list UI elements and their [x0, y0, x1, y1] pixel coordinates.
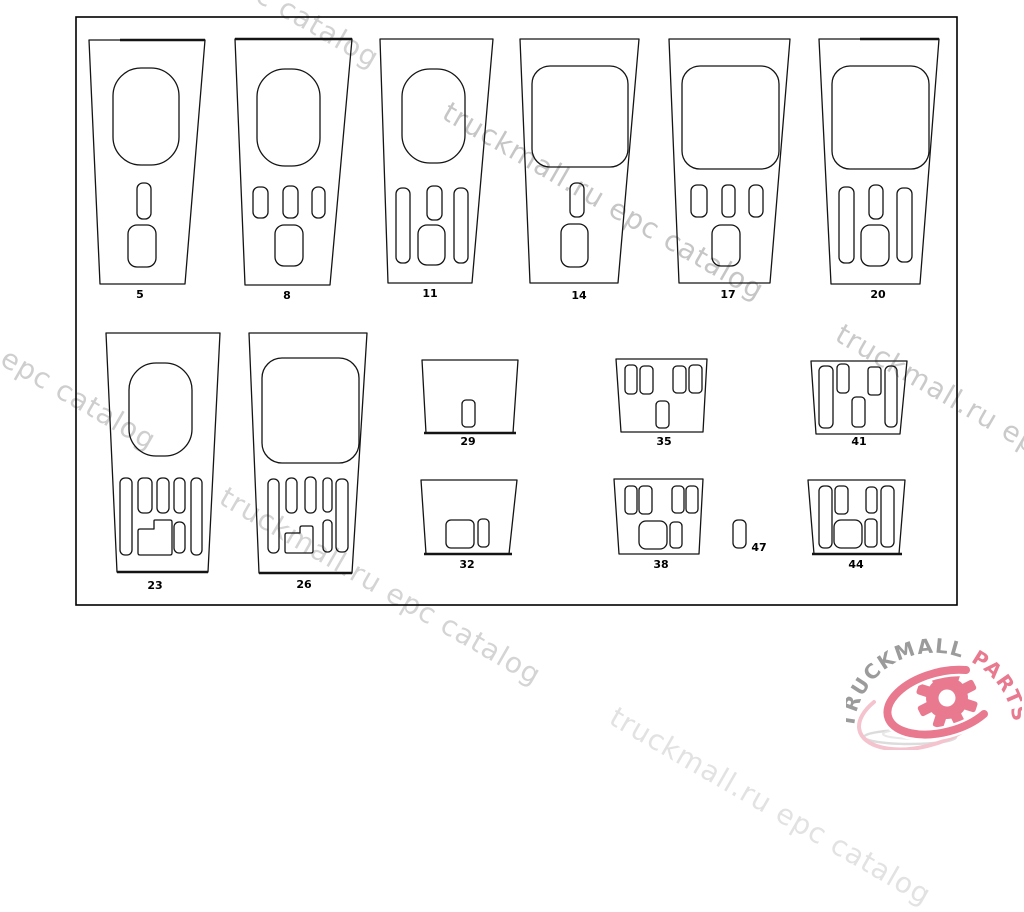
part-panel-29[interactable]: 29	[422, 360, 518, 448]
panel-cutout	[819, 366, 833, 428]
panel-cutout	[835, 486, 848, 514]
diagram-border	[76, 17, 957, 605]
part-panel-44[interactable]: 44	[808, 480, 905, 571]
part-number-23[interactable]: 23	[147, 579, 162, 592]
panel-outline	[669, 39, 790, 283]
panel-cutout	[837, 364, 849, 393]
panel-cutout	[819, 486, 832, 548]
catalog-page: { "page": { "background": "#ffffff" }, "…	[0, 0, 1024, 750]
part-panel-14[interactable]: 14	[520, 39, 639, 302]
panel-cutout	[691, 185, 707, 217]
panel-cutout	[673, 366, 686, 393]
panel-cutout	[323, 520, 332, 552]
part-number-17[interactable]: 17	[720, 288, 735, 301]
part-number-35[interactable]: 35	[656, 435, 671, 448]
part-number-8[interactable]: 8	[283, 289, 291, 302]
panel-cutout	[253, 187, 268, 218]
panel-outline	[422, 360, 518, 433]
panel-outline	[106, 333, 220, 572]
panel-cutout	[402, 69, 465, 163]
panel-cutout	[257, 69, 320, 166]
panel-cutout	[868, 367, 881, 395]
part-number-14[interactable]: 14	[571, 289, 587, 302]
panel-cutout	[832, 66, 929, 169]
panel-cutout	[672, 486, 684, 513]
panel-cutout	[336, 479, 348, 552]
panel-outline	[808, 480, 905, 554]
part-panel-11[interactable]: 11	[380, 39, 493, 300]
panel-cutout	[625, 486, 637, 514]
panel-cutout	[120, 478, 132, 555]
part-panel-20[interactable]: 20	[819, 39, 939, 301]
panel-cutout	[454, 188, 468, 263]
part-number-20[interactable]: 20	[870, 288, 886, 301]
panel-cutout	[866, 487, 877, 513]
panel-cutout	[639, 486, 652, 514]
panel-cutout	[446, 520, 474, 548]
panel-cutout	[640, 366, 653, 394]
part-panel-17[interactable]: 17	[669, 39, 790, 301]
panel-cutout	[268, 479, 279, 553]
part-number-5[interactable]: 5	[136, 288, 144, 301]
panel-cutout	[625, 365, 637, 394]
panel-cutout	[129, 363, 192, 456]
panel-cutout	[656, 401, 669, 428]
panel-outline	[89, 40, 205, 284]
panel-outline	[421, 480, 517, 554]
panel-cutout	[323, 478, 332, 512]
part-number-32[interactable]: 32	[459, 558, 474, 571]
part-panel-26[interactable]: 26	[249, 333, 367, 591]
panel-cutout	[396, 188, 410, 263]
panel-cutout	[138, 520, 172, 555]
panel-cutout	[138, 478, 152, 513]
part-panel-8[interactable]: 8	[235, 39, 352, 302]
panel-cutout	[722, 185, 735, 217]
panel-cutout	[286, 478, 297, 513]
panel-cutout	[885, 366, 897, 427]
panel-cutout	[137, 183, 151, 219]
panel-outline	[616, 359, 707, 432]
panel-cutout	[561, 224, 588, 267]
panel-cutout	[285, 526, 313, 553]
part-panel-35[interactable]: 35	[616, 359, 707, 448]
truckmall-logo: TRUCKMALL PARTS	[846, 636, 1022, 750]
part-panel-38[interactable]: 38	[614, 479, 703, 571]
panel-outline	[614, 479, 703, 554]
panel-cutout	[639, 521, 667, 549]
panel-cutout	[262, 358, 359, 463]
panel-cutout	[312, 187, 325, 218]
panel-cutout	[275, 225, 303, 266]
panel-cutout	[682, 66, 779, 169]
panel-cutout	[834, 520, 862, 548]
panel-cutout	[712, 225, 740, 266]
panel-cutout	[670, 522, 682, 548]
panel-cutout	[157, 478, 169, 513]
panel-cutout	[733, 520, 746, 548]
panel-cutout	[897, 188, 912, 262]
part-panel-47[interactable]: 47	[733, 520, 767, 554]
panel-cutout	[689, 365, 702, 393]
panel-cutout	[861, 225, 889, 266]
part-number-38[interactable]: 38	[653, 558, 668, 571]
panel-cutout	[191, 478, 202, 555]
panel-outline	[249, 333, 367, 573]
panel-outline	[819, 39, 939, 284]
panel-cutout	[174, 522, 185, 553]
panel-cutout	[839, 187, 854, 263]
panel-cutout	[462, 400, 475, 427]
panel-cutout	[570, 183, 584, 217]
part-number-44[interactable]: 44	[848, 558, 864, 571]
panel-outline	[520, 39, 639, 283]
panel-cutout	[128, 225, 156, 267]
part-number-47[interactable]: 47	[751, 541, 766, 554]
panel-cutout	[686, 486, 698, 513]
panel-outline	[235, 39, 352, 285]
panel-cutout	[174, 478, 185, 513]
part-panel-41[interactable]: 41	[811, 361, 907, 448]
panel-cutout	[305, 477, 316, 513]
panel-cutout	[869, 185, 883, 219]
part-number-26[interactable]: 26	[296, 578, 312, 591]
part-number-41[interactable]: 41	[851, 435, 866, 448]
panel-cutout	[852, 397, 865, 427]
panel-outline	[380, 39, 493, 283]
panel-cutout	[749, 185, 763, 217]
panel-cutout	[532, 66, 628, 167]
panel-cutout	[283, 186, 298, 218]
part-panel-5[interactable]: 5	[89, 40, 205, 301]
part-number-29[interactable]: 29	[460, 435, 475, 448]
panel-cutout	[113, 68, 179, 165]
panel-cutout	[427, 186, 442, 220]
part-panel-23[interactable]: 23	[106, 333, 220, 592]
part-panel-32[interactable]: 32	[421, 480, 517, 571]
panel-cutout	[865, 519, 877, 547]
panel-cutout	[418, 225, 445, 265]
panel-cutout	[478, 519, 489, 547]
part-number-11[interactable]: 11	[422, 287, 437, 300]
panel-cutout	[881, 486, 894, 547]
